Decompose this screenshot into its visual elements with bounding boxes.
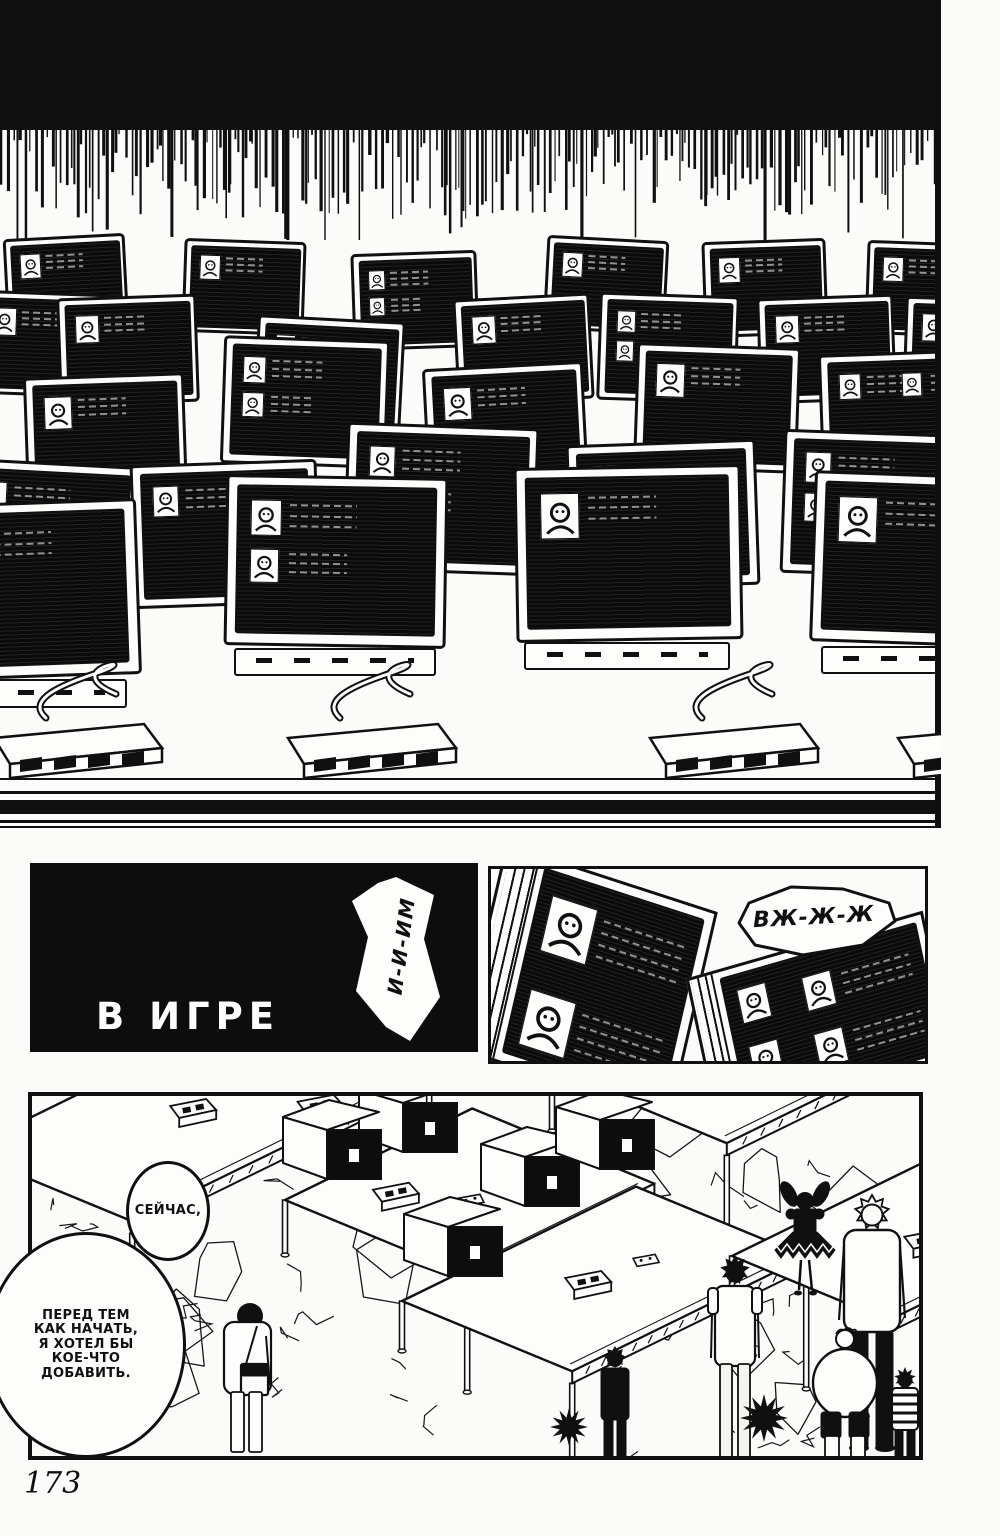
face-eye: [484, 326, 486, 328]
face-head: [536, 1006, 561, 1033]
speedline: [715, 126, 718, 177]
face-head: [376, 453, 388, 465]
screen-text-line: [78, 412, 126, 416]
speedline: [882, 126, 883, 194]
screen-text-line: [579, 1025, 662, 1054]
portrait-thumb: [718, 257, 741, 283]
face-head: [250, 363, 260, 373]
switch-port: [710, 755, 732, 770]
deck-slots: [256, 658, 414, 663]
face-shoulders: [845, 530, 871, 537]
speedline: [308, 126, 309, 183]
speedline: [392, 126, 393, 219]
speedline: [495, 126, 497, 182]
screen-text-line: [0, 531, 51, 535]
speedline: [420, 126, 422, 147]
portrait-thumb: [882, 257, 904, 283]
table-foot: [281, 1253, 289, 1257]
person-leg: [907, 1430, 915, 1456]
speedline: [838, 126, 841, 138]
speedline: [272, 126, 275, 187]
speedline: [115, 126, 118, 153]
speedline: [544, 126, 546, 212]
stone: [743, 1149, 780, 1213]
face-eye: [250, 402, 252, 404]
speedline: [532, 126, 534, 213]
speedline: [135, 126, 138, 176]
switch-box-front: [304, 748, 456, 778]
speedline: [444, 126, 447, 215]
face-head: [26, 260, 35, 269]
console-deck: [821, 646, 941, 674]
speedline: [118, 126, 119, 134]
crt-screen: [525, 475, 731, 630]
face-eye: [762, 1056, 765, 1059]
portrait-face: [369, 446, 394, 476]
speedline: [225, 126, 227, 218]
screen-text-line: [691, 375, 740, 379]
screen-text-line: [588, 261, 625, 265]
screen-text-line: [272, 360, 322, 364]
person-head: [607, 1351, 623, 1367]
speedline: [764, 126, 767, 240]
speedline: [329, 126, 330, 213]
speedline: [597, 126, 598, 148]
speedline: [492, 126, 493, 213]
console-deck: [234, 648, 436, 676]
speedline: [197, 126, 199, 210]
speedline: [17, 126, 19, 240]
crack: [391, 1359, 406, 1370]
face-eye: [59, 408, 61, 410]
person-leg: [617, 1416, 626, 1456]
satchel-flap: [241, 1364, 268, 1376]
speedline: [676, 126, 678, 134]
face-shoulders: [823, 1052, 843, 1062]
crt-screen: [821, 481, 941, 637]
switch-port: [744, 753, 766, 768]
screen-text-line: [838, 456, 894, 460]
screen-text-line: [745, 264, 782, 267]
face-head: [621, 346, 629, 354]
deck-slots: [0, 690, 105, 695]
face-head: [908, 379, 917, 388]
speedline: [297, 126, 299, 138]
screen-text-line: [289, 553, 347, 556]
speedline: [797, 126, 800, 166]
speedline: [904, 126, 905, 165]
portrait-thumb: [152, 486, 179, 517]
portrait-face: [200, 256, 220, 280]
screen-text-line: [45, 254, 82, 258]
portrait-face: [444, 388, 472, 420]
speedline: [185, 126, 187, 181]
face-shoulders: [372, 311, 382, 314]
face-eye: [571, 262, 573, 264]
face-eye: [847, 383, 849, 385]
speedline: [635, 126, 637, 237]
face-eye: [555, 510, 558, 513]
speedline: [92, 126, 94, 232]
person-body: [601, 1368, 629, 1420]
speedline: [284, 126, 287, 239]
title-panel: И-И-ИМ В ИГРЕ: [30, 863, 478, 1052]
portrait-face: [154, 487, 179, 516]
screen-text-line: [588, 495, 656, 498]
speedline: [324, 126, 325, 240]
speedline: [614, 126, 616, 166]
portrait-thumb: [748, 1039, 784, 1064]
speedline: [343, 126, 346, 193]
face-eye: [375, 278, 376, 279]
speedline: [412, 126, 414, 203]
speedline: [892, 126, 894, 177]
crack: [271, 1378, 282, 1398]
portrait-face: [244, 357, 266, 383]
face-eye: [766, 1054, 769, 1057]
face-eye: [851, 383, 853, 385]
screen-text-line: [691, 367, 740, 371]
screen-text-line: [641, 320, 683, 323]
crack: [423, 1405, 437, 1435]
speedline: [180, 126, 183, 164]
speedline: [25, 126, 28, 240]
closeup-monitor-left: [488, 866, 718, 1064]
speedline: [623, 126, 625, 191]
speedline: [916, 126, 919, 165]
screen-text-line: [403, 450, 461, 454]
face-shoulders: [746, 1008, 766, 1018]
speedline: [682, 126, 684, 161]
shoe: [794, 1291, 802, 1296]
screen-text-line: [478, 401, 526, 406]
face-eye: [819, 985, 822, 988]
face-shoulders: [80, 335, 96, 339]
screen-text-line: [641, 326, 683, 329]
speedline: [98, 126, 100, 199]
face-eye: [256, 366, 258, 368]
speedline: [591, 126, 593, 172]
speedline: [785, 126, 788, 212]
closeup-panel: ВЖ-Ж-Ж: [488, 866, 928, 1064]
speedline: [19, 126, 22, 140]
speedline: [381, 126, 384, 189]
speedline: [887, 126, 888, 210]
speedline: [237, 126, 239, 152]
portrait-thumb: [443, 387, 473, 422]
speedline: [397, 126, 400, 157]
face-head: [725, 264, 734, 273]
portrait-thumb: [0, 308, 17, 337]
screen-text-line: [402, 459, 460, 463]
face-eye: [262, 561, 264, 563]
crack: [280, 1327, 299, 1341]
speedline: [576, 126, 577, 164]
face-head: [82, 322, 93, 333]
speedline: [847, 126, 849, 233]
face-eye: [543, 1014, 547, 1019]
speedline: [526, 126, 528, 134]
portrait-thumb: [774, 315, 799, 344]
face-head: [664, 371, 677, 384]
face-head: [746, 992, 761, 1008]
screen-text-line: [886, 512, 941, 516]
speedline: [406, 126, 408, 183]
face-eye: [819, 463, 821, 465]
face-eye: [827, 1043, 830, 1046]
screen-text-line: [0, 542, 51, 546]
speedline: [727, 126, 730, 200]
face-eye: [788, 325, 790, 327]
speedline: [860, 126, 863, 203]
screen-text-line: [886, 502, 941, 506]
speedline: [770, 126, 773, 168]
crt-monitor: [224, 474, 449, 649]
screen-text-line: [588, 255, 625, 259]
portrait-thumb: [540, 895, 599, 965]
speedline: [245, 126, 248, 158]
face-eye: [667, 376, 669, 378]
face-shoulders: [247, 375, 262, 379]
face-head: [206, 261, 215, 270]
speedline: [853, 126, 855, 180]
screen-text-line: [845, 973, 913, 994]
face-shoulders: [49, 420, 67, 425]
speedline: [804, 126, 805, 190]
face-shoulders: [619, 355, 630, 358]
speedline: [481, 126, 484, 205]
portrait-thumb: [838, 373, 861, 400]
portrait-thumb: [251, 500, 282, 537]
speedline: [461, 126, 463, 227]
screen-text-line: [745, 258, 782, 261]
portrait-thumb: [518, 989, 577, 1059]
face-shoulders: [371, 284, 382, 287]
face-shoulders: [886, 275, 900, 279]
portrait-thumb: [75, 315, 100, 345]
portrait-face: [903, 374, 922, 396]
face-eye: [754, 998, 757, 1001]
speedline: [194, 126, 196, 186]
monitor-wall-panel: [0, 0, 941, 835]
portrait-face: [883, 258, 903, 282]
speedline: [902, 126, 904, 238]
speedline: [794, 126, 797, 182]
portrait-thumb: [367, 270, 385, 291]
speedline: [665, 126, 668, 160]
speedline: [555, 126, 556, 181]
face-head: [260, 509, 273, 522]
speedline: [653, 126, 656, 203]
person-leg: [604, 1416, 613, 1456]
face-head: [849, 508, 866, 525]
screen-text-line: [804, 322, 845, 325]
stone: [195, 1242, 242, 1301]
speedline: [73, 126, 75, 184]
screen-text-line: [601, 932, 684, 961]
speedline: [0, 126, 2, 185]
speedline: [841, 126, 844, 156]
portrait-face: [243, 393, 263, 417]
crt-screen: [502, 867, 705, 1064]
face-eye: [252, 366, 254, 368]
face-shoulders: [723, 276, 737, 280]
face-eye: [913, 381, 914, 382]
face-head: [758, 1049, 773, 1064]
person-pants: [720, 1364, 732, 1456]
face-eye: [208, 264, 210, 266]
speedline: [657, 126, 658, 187]
screen-text-line: [596, 955, 679, 984]
speedline: [162, 126, 163, 181]
speedline: [659, 126, 662, 137]
speedline: [684, 126, 685, 143]
speedline: [301, 126, 304, 201]
portrait-thumb: [838, 496, 878, 543]
speedline: [522, 126, 524, 156]
person-shorts: [821, 1412, 841, 1438]
portrait-thumb: [243, 356, 267, 384]
face-eye: [565, 921, 569, 926]
portrait-thumb: [368, 297, 385, 317]
switch-box-top: [0, 724, 162, 764]
portrait-thumb: [902, 372, 923, 396]
person-leg: [851, 1436, 865, 1456]
face-head: [0, 315, 10, 325]
speedline: [927, 126, 928, 141]
speedline: [700, 126, 702, 200]
face-head: [568, 258, 577, 267]
gamepad-button: [640, 1259, 643, 1262]
speedline: [315, 126, 317, 179]
bodice: [794, 1209, 816, 1233]
screen-text-line: [641, 313, 683, 316]
face-eye: [163, 497, 165, 499]
face-eye: [254, 402, 256, 404]
face-eye: [211, 264, 213, 266]
screen-text-line: [886, 523, 941, 527]
crack: [744, 1201, 758, 1209]
speedline: [485, 126, 487, 201]
person-body: [813, 1349, 877, 1417]
face-eye: [860, 514, 863, 517]
speedline: [558, 126, 560, 156]
switch-port: [314, 757, 336, 772]
screen-text-line: [391, 303, 424, 306]
screen-text-line: [272, 368, 322, 372]
table-monitor: [556, 1096, 654, 1169]
speedline: [801, 126, 802, 214]
speedline: [265, 126, 268, 178]
screen-text-line: [104, 322, 146, 325]
speedline: [476, 126, 479, 216]
speedline: [825, 126, 828, 147]
face-shoulders: [527, 1031, 560, 1049]
speedline: [85, 126, 87, 213]
face-shoulders: [373, 467, 390, 472]
face-shoulders: [158, 508, 175, 513]
switch-port: [88, 753, 110, 768]
person-arm: [711, 1314, 712, 1358]
speedline: [29, 126, 30, 151]
face-eye: [268, 513, 270, 515]
screen-text-line: [290, 525, 357, 528]
face-eye: [625, 349, 626, 350]
screen-text-line: [271, 403, 314, 407]
console-deck: [0, 679, 127, 707]
face-eye: [894, 266, 896, 268]
person-head: [726, 1264, 745, 1283]
speedline: [146, 126, 149, 167]
speedline: [884, 126, 886, 195]
portrait-face: [656, 364, 684, 397]
table-edge-line: [0, 791, 941, 794]
person-spikeball: [550, 1408, 588, 1446]
portrait-thumb: [736, 982, 772, 1025]
crack: [287, 1264, 301, 1292]
portrait-thumb: [242, 392, 264, 418]
screen-text-line: [290, 515, 357, 518]
speedline: [449, 126, 452, 233]
speedlines: [0, 0, 941, 240]
speedline: [436, 126, 438, 150]
speedline: [375, 126, 377, 189]
sleeve: [708, 1288, 718, 1314]
screen-text-line: [588, 267, 625, 271]
speedline: [368, 126, 371, 155]
person-walker: [224, 1303, 271, 1452]
switch-box: [288, 724, 456, 778]
speedline: [867, 126, 870, 148]
face-eye: [550, 1017, 554, 1022]
face-eye: [88, 326, 90, 328]
screen-text-line: [290, 505, 357, 508]
speech-line: КАК НАЧАТЬ,: [34, 1323, 138, 1338]
crt-screen: [0, 509, 130, 669]
speedline: [293, 126, 294, 138]
switch-box-front: [10, 748, 162, 778]
speedline: [441, 126, 443, 187]
switch-port: [778, 751, 800, 766]
table-monitor: [404, 1197, 502, 1276]
speedline: [530, 126, 532, 192]
deck-slots: [843, 656, 941, 661]
speedline: [671, 126, 673, 156]
portrait-face: [563, 253, 583, 277]
screen-text-line: [391, 309, 424, 312]
screen-text-line: [226, 258, 263, 261]
portrait-thumb: [471, 315, 496, 344]
cable: [696, 665, 772, 718]
speedline: [534, 126, 535, 147]
face-eye: [167, 497, 169, 499]
speedline: [731, 126, 733, 164]
portrait-thumb: [562, 252, 585, 278]
face-eye: [815, 987, 818, 990]
face-eye: [454, 399, 456, 401]
crt-monitor: [809, 470, 941, 649]
speedline: [816, 126, 818, 143]
console-deck: [524, 642, 730, 670]
face-shoulders: [566, 270, 580, 274]
switch-box-front: [666, 748, 818, 778]
speedline: [516, 126, 519, 211]
face-eye: [375, 305, 376, 306]
screen-text-line: [105, 328, 147, 331]
speedline: [206, 126, 207, 142]
table-leg: [400, 1301, 405, 1351]
screen-text-line: [390, 276, 428, 279]
